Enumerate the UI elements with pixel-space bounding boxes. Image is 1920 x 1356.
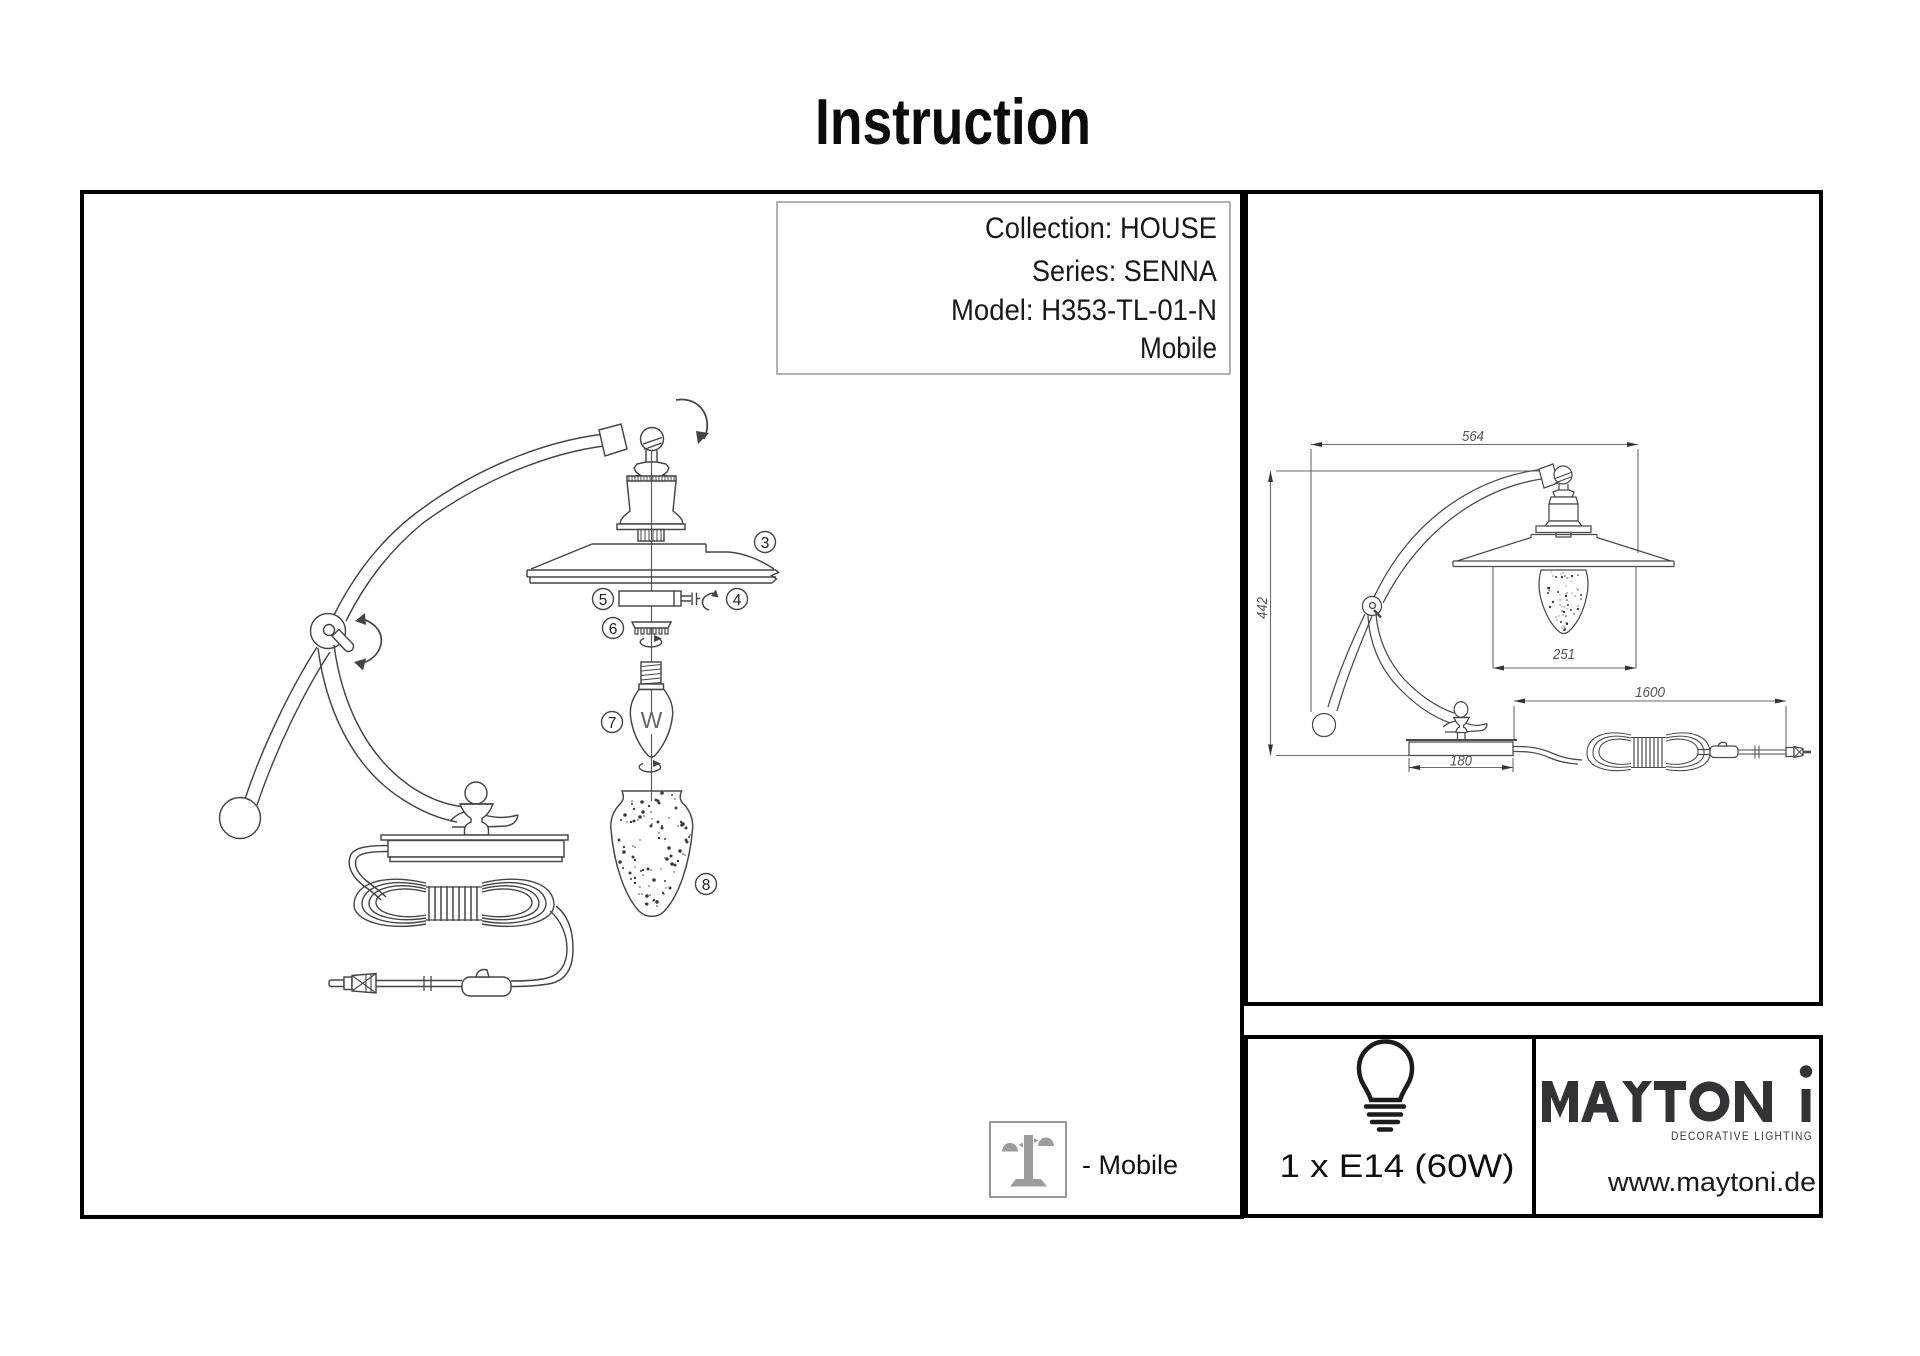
svg-text:5: 5 [599,592,608,609]
svg-text:564: 564 [1462,428,1484,445]
svg-text:1600: 1600 [1635,684,1666,701]
svg-text:4: 4 [733,592,742,609]
svg-text:DECORATIVE LIGHTING: DECORATIVE LIGHTING [1671,1129,1813,1143]
svg-text:8: 8 [702,877,711,894]
svg-text:3: 3 [761,535,770,552]
svg-text:Mobile: Mobile [1140,332,1217,365]
svg-text:6: 6 [609,621,618,638]
svg-text:Instruction: Instruction [815,85,1091,158]
svg-text:442: 442 [1254,596,1271,619]
svg-text:Model: H353-TL-01-N: Model: H353-TL-01-N [951,294,1217,327]
svg-text:www.maytoni.de: www.maytoni.de [1607,1167,1816,1197]
svg-text:- Mobile: - Mobile [1082,1150,1178,1180]
svg-text:Series: SENNA: Series: SENNA [1032,255,1217,288]
svg-text:Collection: HOUSE: Collection: HOUSE [985,212,1217,245]
svg-text:7: 7 [608,715,617,732]
svg-text:180: 180 [1450,753,1473,770]
svg-text:251: 251 [1552,646,1575,663]
svg-text:1 x E14 (60W): 1 x E14 (60W) [1280,1148,1515,1184]
